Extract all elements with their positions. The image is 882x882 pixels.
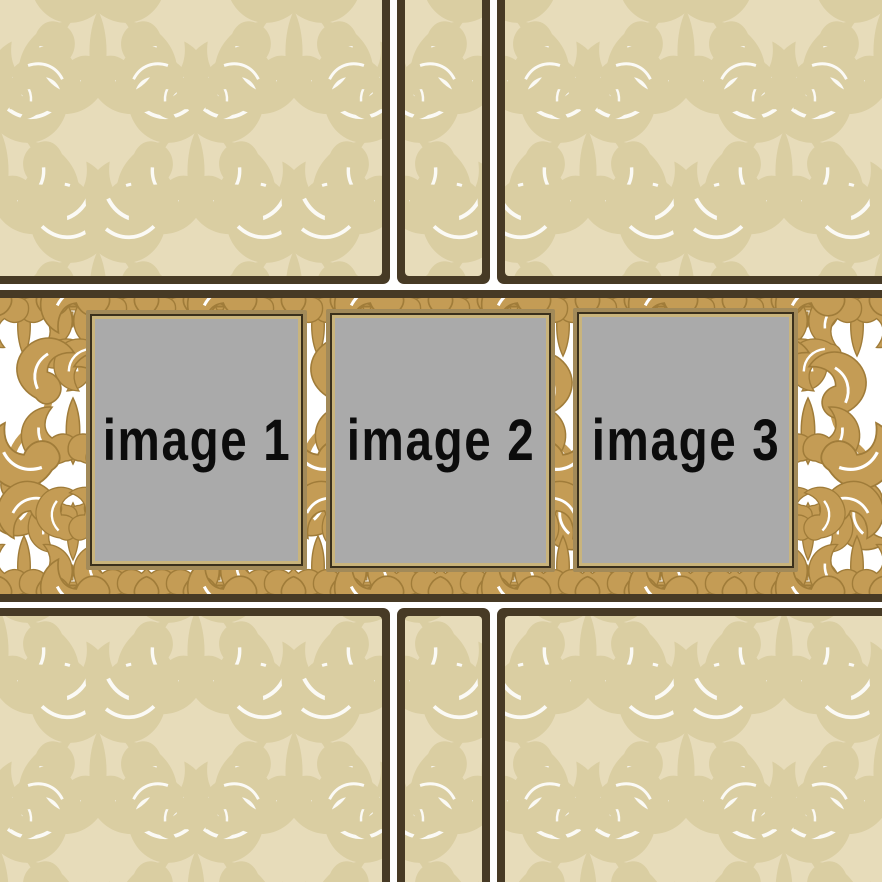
image-placeholder-1-frame: image 1 <box>90 314 303 566</box>
image-placeholder-1[interactable]: image 1 <box>86 310 307 570</box>
collage-template-page: image 1 image 2 image 3 <box>0 0 882 882</box>
image-placeholder-1-label: image 1 <box>102 407 291 474</box>
image-placeholder-3-label: image 3 <box>591 407 780 474</box>
image-placeholder-1-area: image 1 <box>92 316 301 564</box>
wallpaper-panel-top-right <box>497 0 882 284</box>
band-top-border <box>0 290 882 298</box>
image-placeholder-3[interactable]: image 3 <box>573 308 798 572</box>
wallpaper-panel-bottom-middle <box>397 608 490 882</box>
wallpaper-panel-bottom-right <box>497 608 882 882</box>
wallpaper-panel-bottom-left <box>0 608 390 882</box>
image-placeholder-2-label: image 2 <box>346 407 535 474</box>
wallpaper-panel-top-middle <box>397 0 490 284</box>
image-placeholder-2[interactable]: image 2 <box>326 309 555 572</box>
image-placeholder-3-area: image 3 <box>579 314 792 566</box>
band-bottom-border <box>0 594 882 602</box>
image-placeholder-2-area: image 2 <box>332 315 549 566</box>
image-placeholder-3-frame: image 3 <box>577 312 794 568</box>
image-placeholder-2-frame: image 2 <box>330 313 551 568</box>
wallpaper-panel-top-left <box>0 0 390 284</box>
